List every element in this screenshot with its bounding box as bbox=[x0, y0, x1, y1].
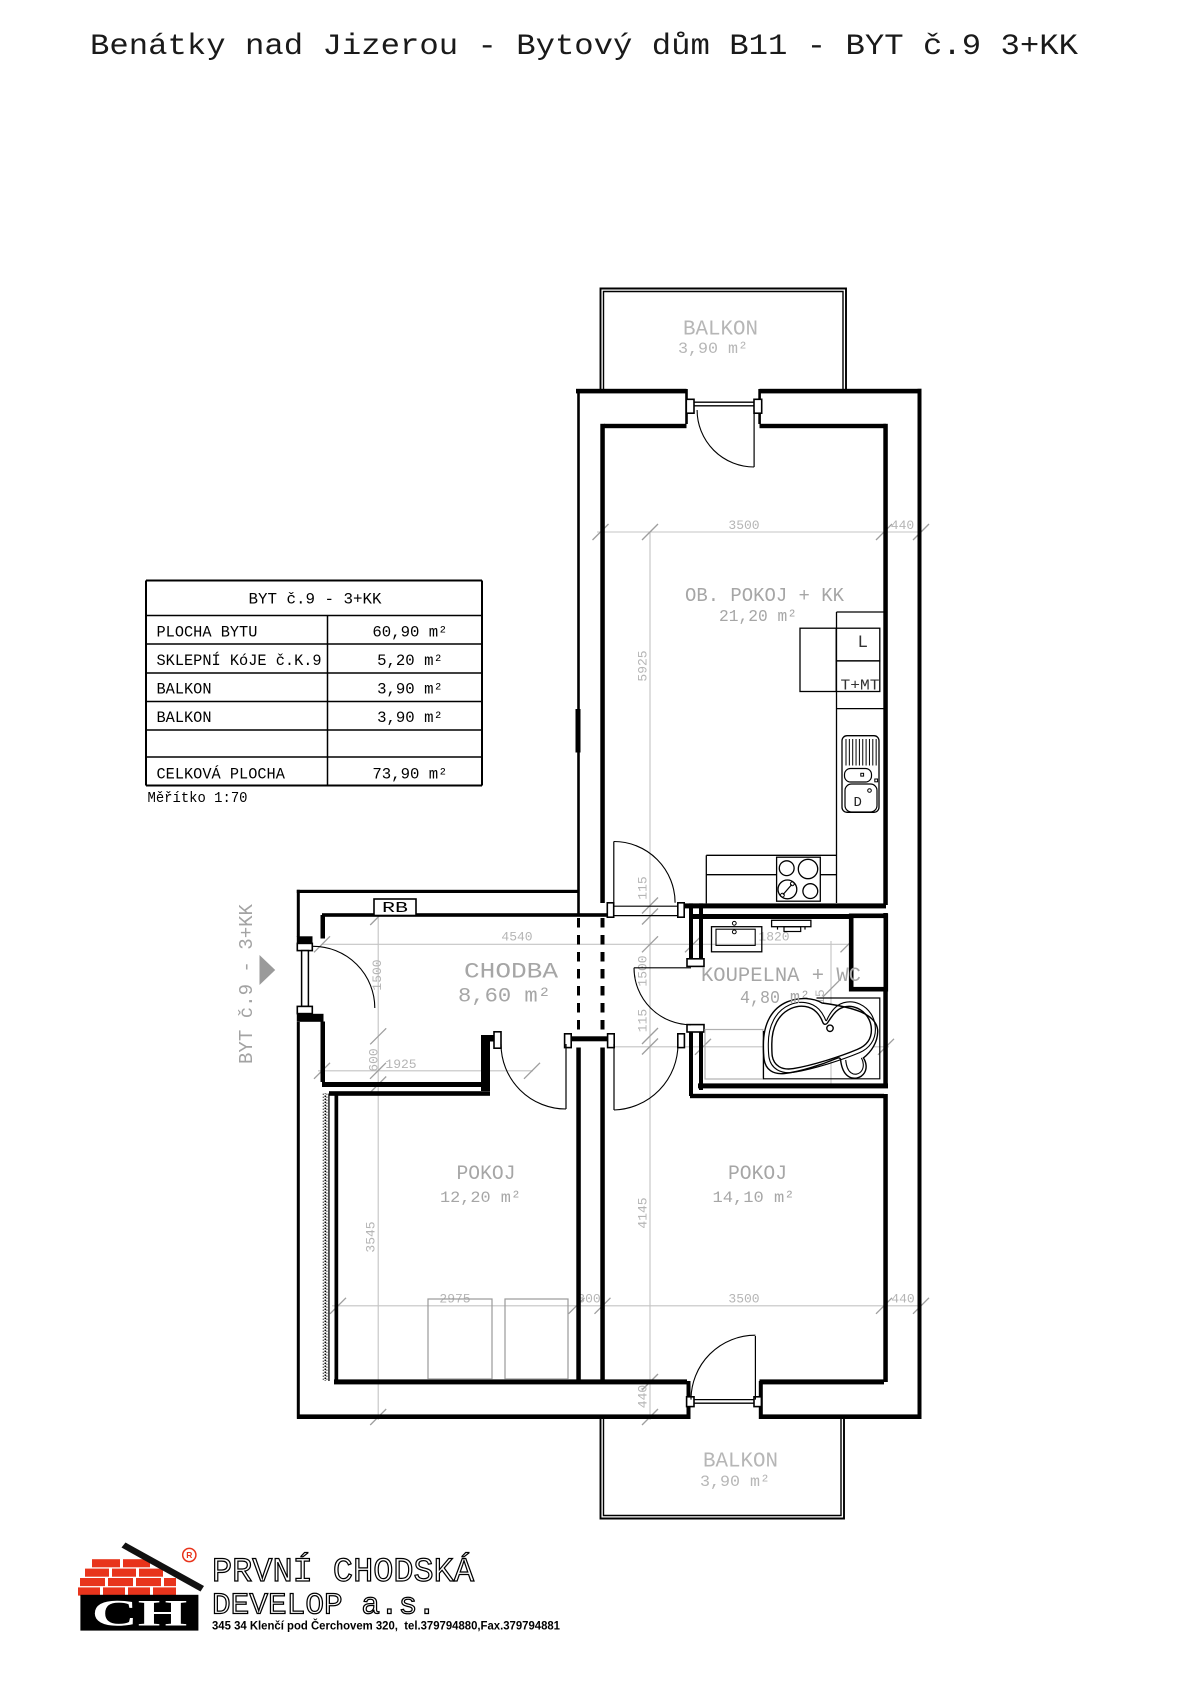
svg-text:3500: 3500 bbox=[728, 1292, 759, 1307]
svg-text:4,80 m²: 4,80 m² bbox=[740, 989, 810, 1009]
svg-text:D: D bbox=[854, 795, 862, 811]
svg-text:12,20 m²: 12,20 m² bbox=[440, 1189, 521, 1207]
svg-text:115: 115 bbox=[636, 876, 651, 899]
svg-text:PRVNÍ CHODSKÁ: PRVNÍ CHODSKÁ bbox=[212, 1553, 475, 1592]
svg-text:4145: 4145 bbox=[636, 1197, 651, 1228]
svg-text:L: L bbox=[858, 633, 869, 653]
svg-text:T+MT: T+MT bbox=[841, 678, 880, 695]
svg-text:Benátky nad Jizerou - Bytový d: Benátky nad Jizerou - Bytový dům B11 - B… bbox=[90, 30, 1078, 64]
svg-text:3,90 m²: 3,90 m² bbox=[377, 681, 443, 699]
svg-text:KOUPELNA + WC: KOUPELNA + WC bbox=[701, 965, 861, 988]
svg-text:3,90 m²: 3,90 m² bbox=[377, 709, 443, 727]
svg-text:1500: 1500 bbox=[370, 959, 385, 990]
svg-text:CELKOVÁ PLOCHA: CELKOVÁ PLOCHA bbox=[157, 766, 286, 784]
svg-text:440: 440 bbox=[636, 1385, 651, 1408]
svg-text:440: 440 bbox=[891, 1292, 914, 1307]
svg-text:3,90 m²: 3,90 m² bbox=[678, 340, 748, 358]
svg-text:1500: 1500 bbox=[636, 955, 651, 986]
svg-text:POKOJ: POKOJ bbox=[457, 1163, 516, 1186]
svg-text:BALKON: BALKON bbox=[683, 319, 758, 342]
svg-text:CH: CH bbox=[92, 1594, 187, 1635]
svg-text:21,20 m²: 21,20 m² bbox=[719, 607, 797, 626]
svg-text:BYT č.9 - 3+KK: BYT č.9 - 3+KK bbox=[249, 591, 383, 609]
svg-text:300: 300 bbox=[577, 1292, 600, 1307]
svg-text:RB: RB bbox=[382, 900, 408, 917]
svg-text:3545: 3545 bbox=[364, 1221, 379, 1252]
svg-text:SKLEPNÍ KóJE č.K.9: SKLEPNÍ KóJE č.K.9 bbox=[157, 652, 322, 670]
svg-text:73,90 m²: 73,90 m² bbox=[372, 766, 447, 784]
svg-text:3,90 m²: 3,90 m² bbox=[700, 1473, 770, 1491]
svg-text:60,90 m²: 60,90 m² bbox=[372, 624, 447, 642]
svg-text:440: 440 bbox=[891, 518, 914, 533]
svg-text:5925: 5925 bbox=[636, 650, 651, 681]
svg-text:1925: 1925 bbox=[385, 1057, 416, 1072]
svg-text:4540: 4540 bbox=[501, 930, 532, 945]
svg-text:R: R bbox=[186, 1550, 192, 1560]
svg-text:BALKON: BALKON bbox=[157, 681, 212, 699]
svg-text:BALKON: BALKON bbox=[703, 1451, 778, 1474]
svg-text:CHODBA: CHODBA bbox=[464, 960, 559, 985]
svg-text:BALKON: BALKON bbox=[157, 709, 212, 727]
svg-text:14,10 m²: 14,10 m² bbox=[713, 1189, 795, 1207]
svg-text:BYT č.9 - 3+KK: BYT č.9 - 3+KK bbox=[236, 903, 258, 1064]
svg-text:115: 115 bbox=[636, 1009, 651, 1032]
svg-text:345 34 Klenčí pod Čerchovem 32: 345 34 Klenčí pod Čerchovem 320, tel.379… bbox=[212, 1618, 560, 1633]
svg-text:3500: 3500 bbox=[728, 518, 759, 533]
svg-text:OB. POKOJ + KK: OB. POKOJ + KK bbox=[685, 585, 845, 607]
svg-text:8,60 m²: 8,60 m² bbox=[458, 986, 551, 1009]
svg-text:5,20 m²: 5,20 m² bbox=[377, 652, 443, 670]
svg-text:PLOCHA BYTU: PLOCHA BYTU bbox=[157, 624, 258, 642]
svg-text:600: 600 bbox=[367, 1048, 382, 1071]
svg-text:POKOJ: POKOJ bbox=[728, 1163, 787, 1186]
svg-text:Měřítko 1:70: Měřítko 1:70 bbox=[148, 791, 248, 807]
